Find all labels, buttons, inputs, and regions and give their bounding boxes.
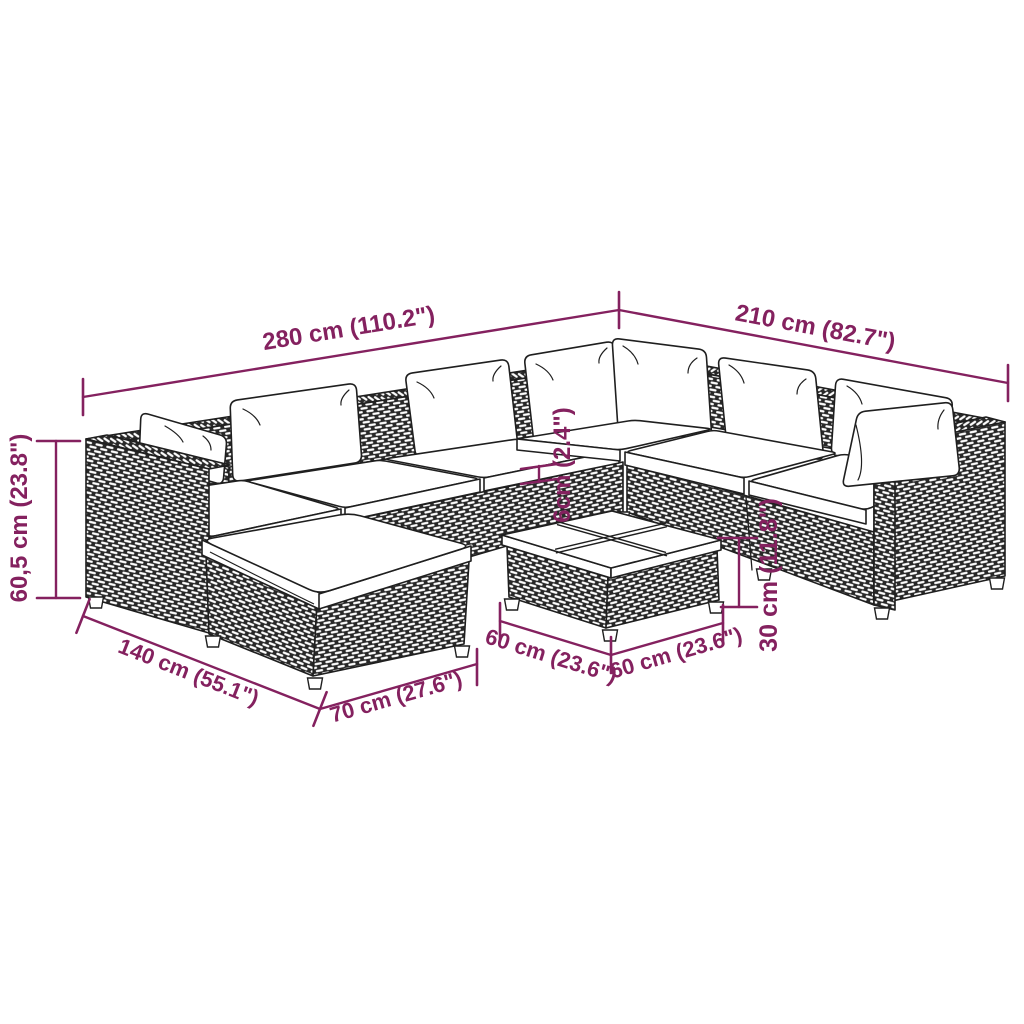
svg-text:30 cm (11.8"): 30 cm (11.8") [755, 498, 783, 652]
svg-text:6cm (2.4"): 6cm (2.4") [549, 407, 576, 522]
svg-text:60,5 cm (23.8"): 60,5 cm (23.8") [6, 434, 33, 603]
